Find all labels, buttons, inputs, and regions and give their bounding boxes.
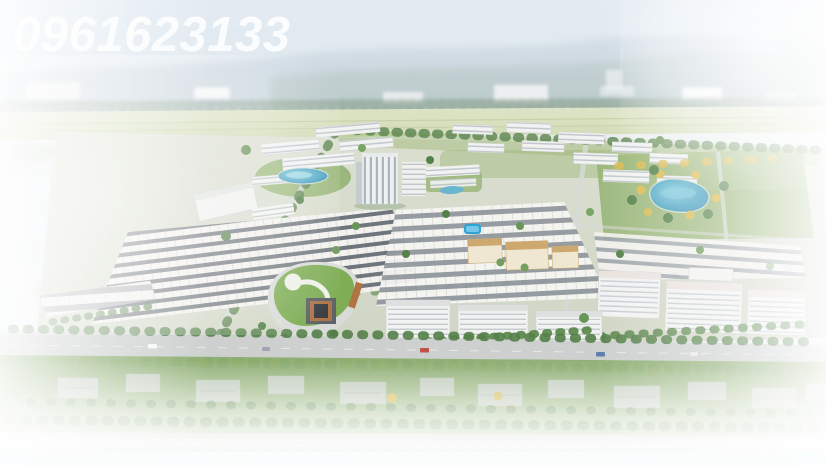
watermark-phone-number: 0961623133	[13, 8, 291, 62]
aerial-render-image: 0961623133	[0, 0, 826, 465]
scene-canvas: 0961623133	[0, 0, 826, 465]
white-vignette	[0, 0, 826, 465]
